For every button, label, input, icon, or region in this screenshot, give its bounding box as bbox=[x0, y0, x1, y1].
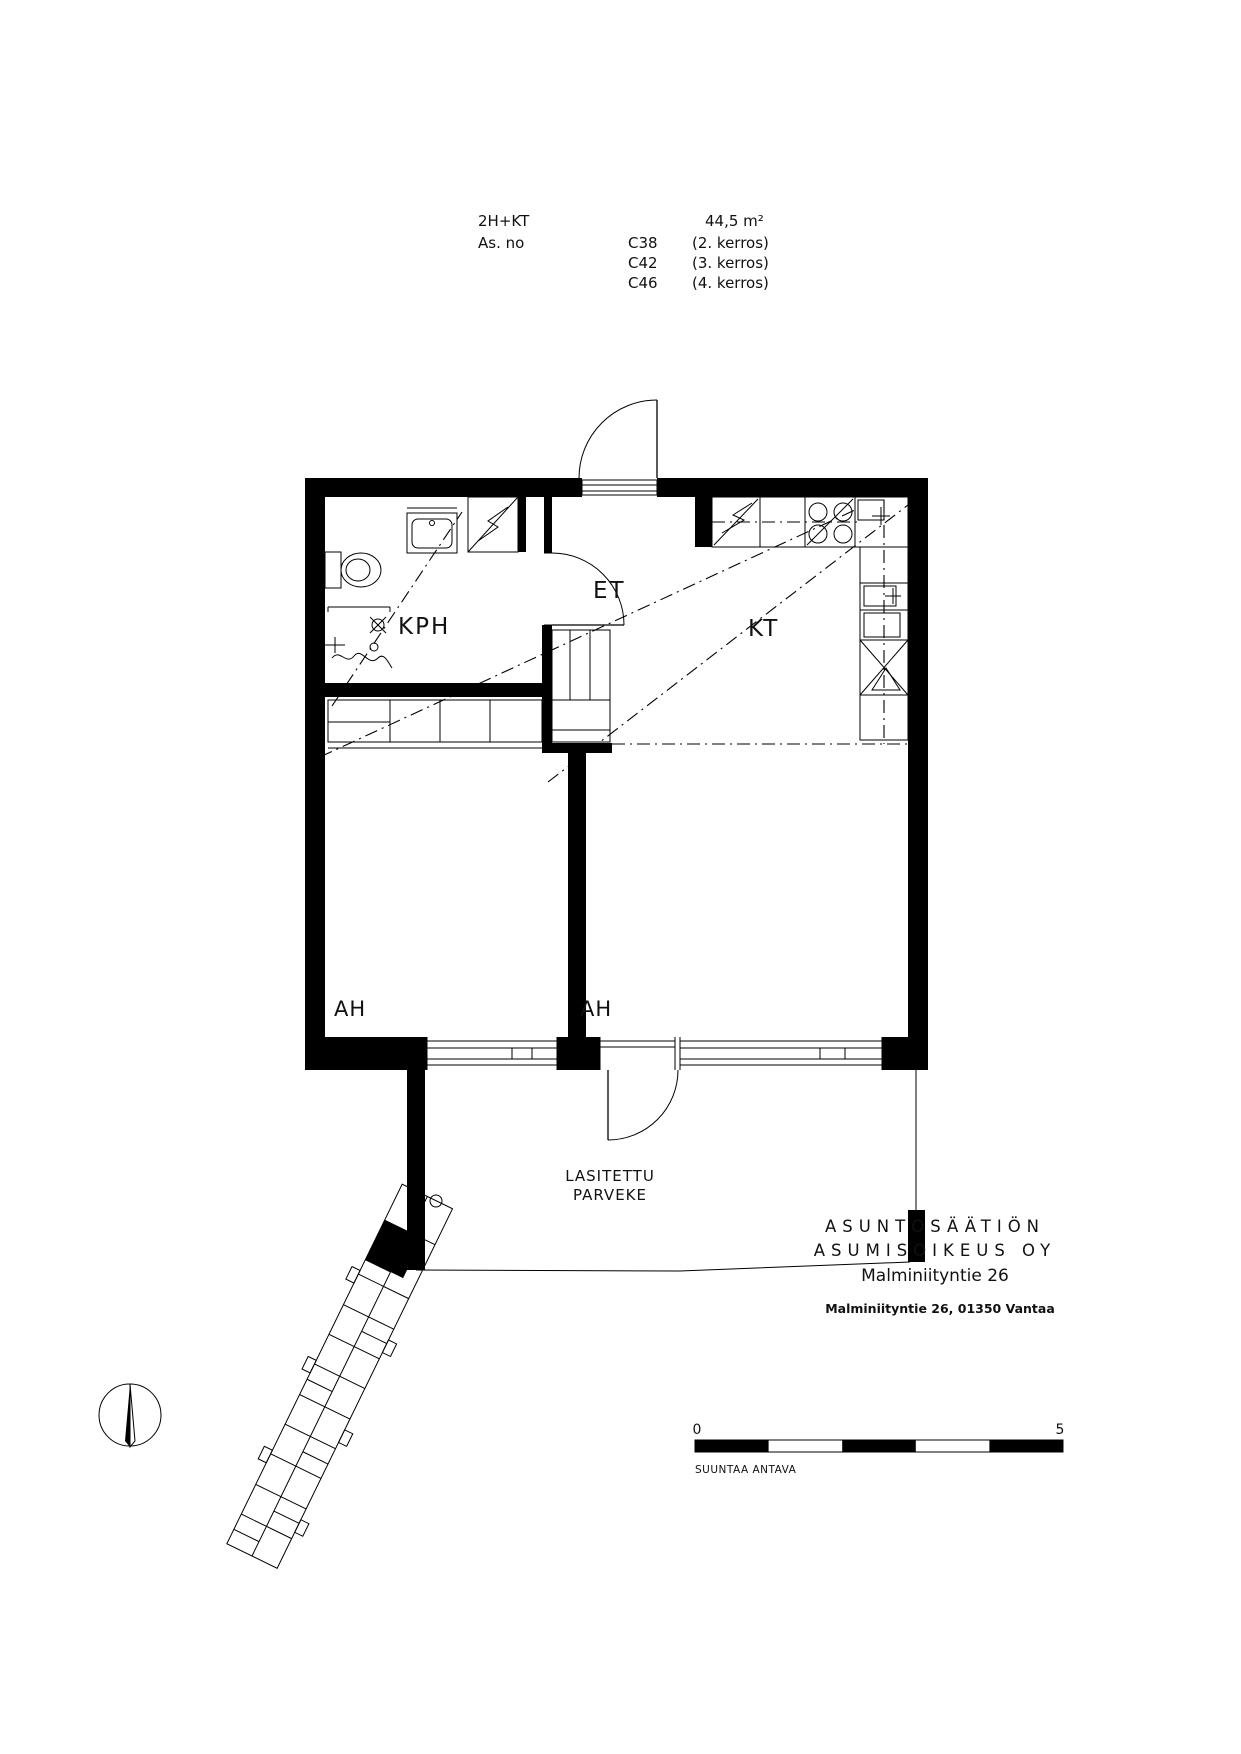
north-arrow-icon bbox=[99, 1384, 161, 1447]
toilet-icon bbox=[325, 552, 341, 588]
company-name-line1: ASUNTOSÄÄTIÖN bbox=[825, 1217, 1045, 1236]
balcony-label-2: PARVEKE bbox=[573, 1186, 647, 1204]
balcony-door bbox=[600, 1037, 678, 1140]
room-label-right: AH bbox=[580, 997, 612, 1021]
bathroom-fixtures bbox=[325, 497, 518, 668]
window-left bbox=[427, 1037, 557, 1070]
interior-walls bbox=[325, 497, 712, 1037]
room-labels: KPH ET KT AH AH LASITETTU PARVEKE bbox=[334, 578, 779, 1204]
room-label-left: AH bbox=[334, 997, 366, 1021]
scale-bar: 0 5 SUUNTAA ANTAVA bbox=[693, 1422, 1065, 1476]
kitchen-sink-icon bbox=[864, 586, 901, 606]
window-right bbox=[680, 1037, 882, 1070]
unit-code-2: C42 bbox=[628, 254, 658, 272]
room-label-entry: ET bbox=[593, 578, 626, 604]
title-block: ASUNTOSÄÄTIÖN ASUMISOIKEUS OY Malminiity… bbox=[814, 1217, 1056, 1316]
company-name-line2: ASUMISOIKEUS OY bbox=[814, 1241, 1056, 1260]
unit-floor-3: (4. kerros) bbox=[692, 274, 769, 292]
header-block: 2H+KT As. no 44,5 m² C38 (2. kerros) C42… bbox=[478, 212, 769, 292]
room-label-bathroom: KPH bbox=[398, 614, 450, 640]
unit-floor-1: (2. kerros) bbox=[692, 234, 769, 252]
unit-code-1: C38 bbox=[628, 234, 658, 252]
shower-icon bbox=[325, 607, 392, 668]
unit-floor-2: (3. kerros) bbox=[692, 254, 769, 272]
oven-icon bbox=[864, 613, 900, 637]
balcony-door-swing bbox=[608, 1070, 678, 1140]
project-name: Malminiityntie 26 bbox=[861, 1266, 1009, 1286]
room-label-kitchen: KT bbox=[748, 616, 779, 642]
scale-start-label: 0 bbox=[693, 1422, 702, 1438]
apartment-number-label: As. no bbox=[478, 234, 524, 252]
apartment-type-label: 2H+KT bbox=[478, 212, 530, 230]
wardrobes bbox=[328, 700, 542, 748]
entrance-door bbox=[579, 400, 657, 495]
duct-shaft bbox=[468, 497, 518, 552]
reference-lines bbox=[320, 500, 908, 782]
entry-closet bbox=[552, 630, 610, 742]
exterior-walls bbox=[305, 478, 928, 1070]
floor-plan-drawing: 2H+KT As. no 44,5 m² C38 (2. kerros) C42… bbox=[0, 0, 1241, 1754]
entrance-door-swing bbox=[579, 400, 657, 478]
project-address: Malminiityntie 26, 01350 Vantaa bbox=[825, 1301, 1055, 1316]
unit-code-3: C46 bbox=[628, 274, 658, 292]
scale-note: SUUNTAA ANTAVA bbox=[695, 1464, 797, 1476]
area-label: 44,5 m² bbox=[705, 212, 764, 230]
scale-end-label: 5 bbox=[1056, 1422, 1065, 1438]
floor-plan-page: 2H+KT As. no 44,5 m² C38 (2. kerros) C42… bbox=[0, 0, 1241, 1754]
balcony-label-1: LASITETTU bbox=[565, 1167, 655, 1185]
site-plan bbox=[219, 1180, 461, 1572]
corner-sink-icon bbox=[858, 500, 890, 525]
